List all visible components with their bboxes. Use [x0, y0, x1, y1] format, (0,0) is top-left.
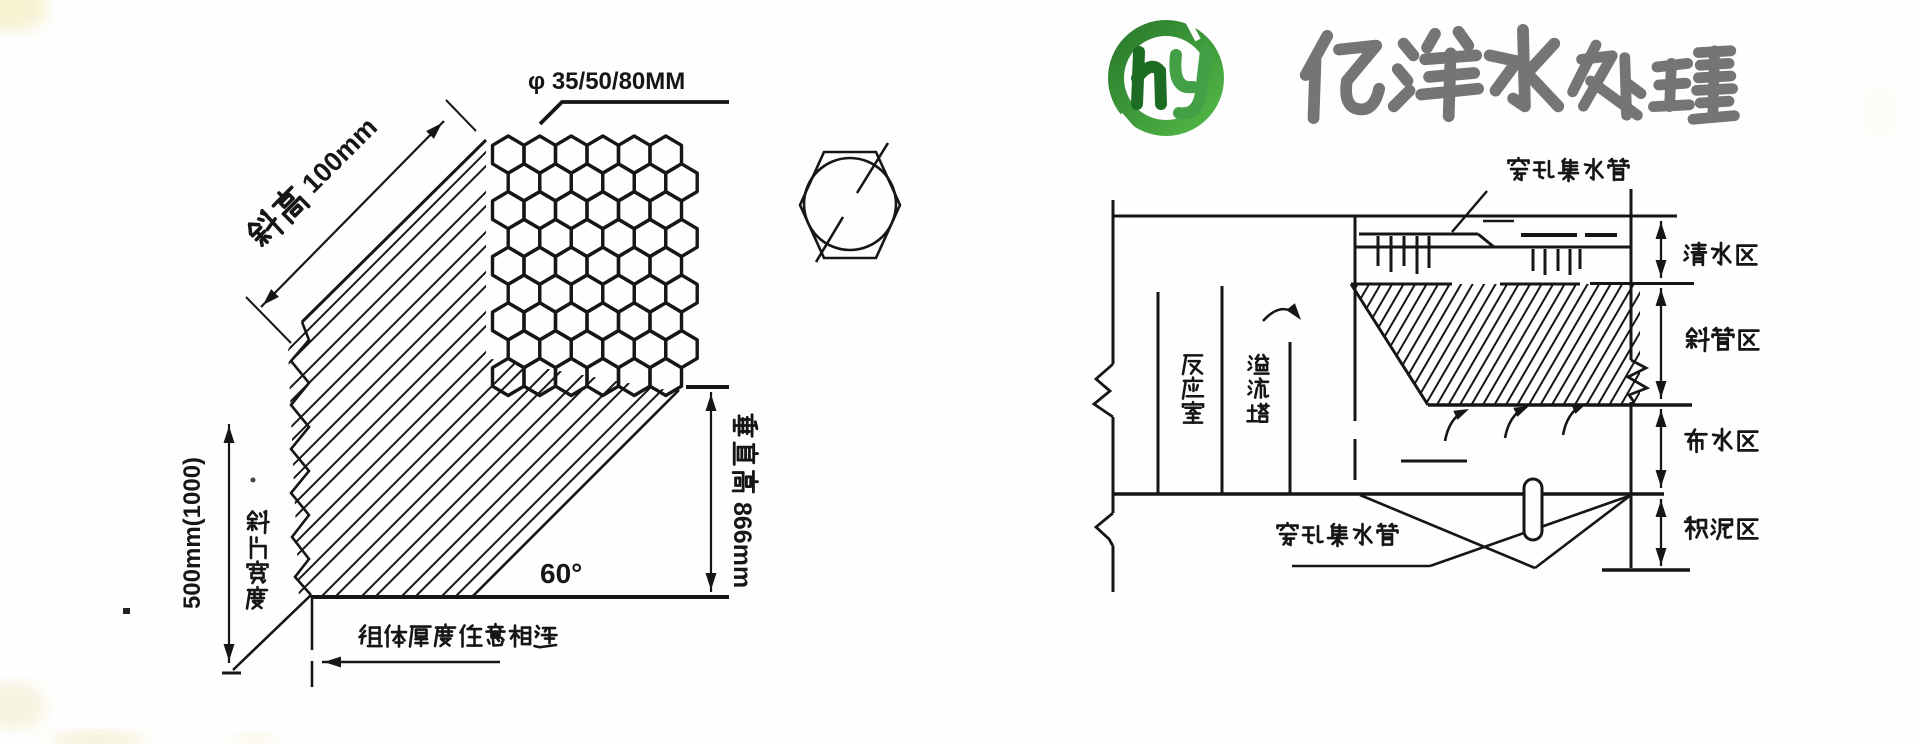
svg-text:60°: 60°	[540, 558, 582, 589]
svg-text:866mm: 866mm	[728, 502, 756, 588]
svg-text:φ 35/50/80MM: φ 35/50/80MM	[528, 68, 685, 95]
svg-text:500mm(1000): 500mm(1000)	[179, 457, 206, 609]
